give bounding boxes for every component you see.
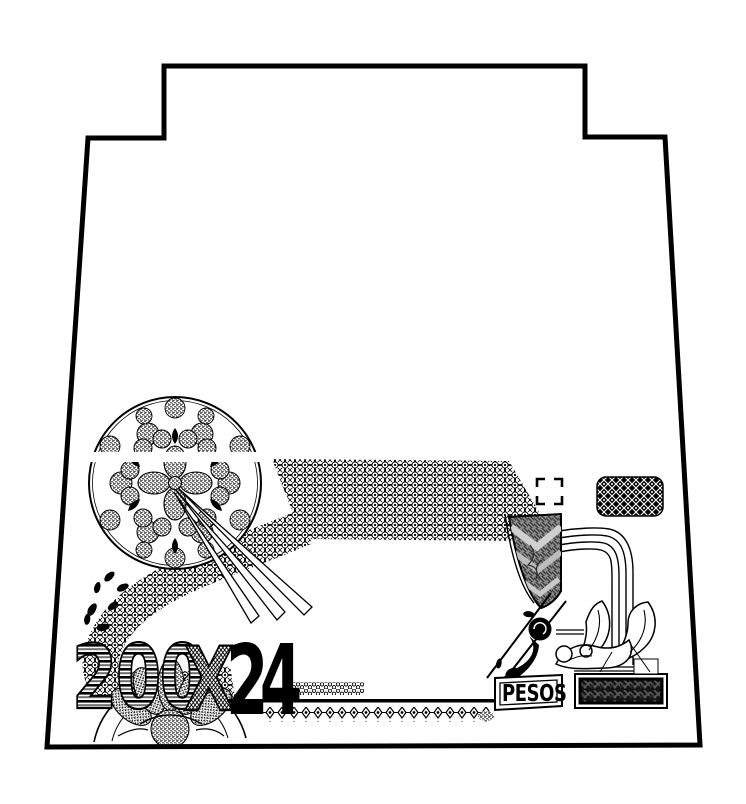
- counter-24: 24: [226, 625, 300, 737]
- banknote-sketch-canvas: 200 X 24: [0, 0, 746, 804]
- black-scroll-ornament: [495, 609, 552, 680]
- banknote-sketch: 200 X 24: [0, 0, 746, 804]
- blank-band: [88, 452, 262, 462]
- engraver-scribble: [478, 711, 494, 721]
- registration-mark-icon: [537, 479, 562, 504]
- denomination-group: 200 X 24: [72, 625, 300, 737]
- pedestal: [575, 674, 667, 708]
- pesos-plate: PESOS: [495, 675, 567, 710]
- security-patch: [597, 477, 663, 516]
- pesos-label: PESOS: [502, 680, 567, 707]
- chevron-panel: [505, 514, 561, 608]
